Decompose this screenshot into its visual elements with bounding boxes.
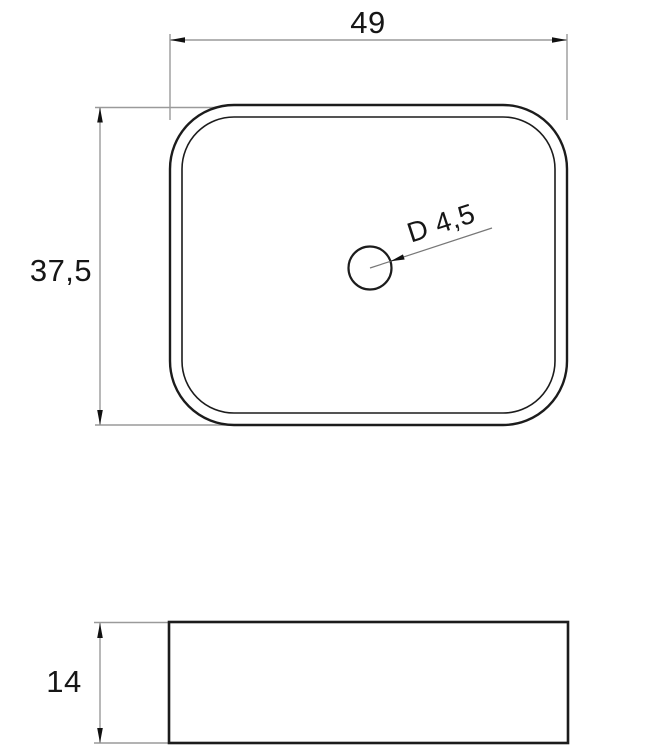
width-dimension: 49 xyxy=(170,5,567,120)
side-arrow-top-icon xyxy=(97,623,103,638)
basin-top-view: D 4,5 xyxy=(170,105,567,425)
height-arrow-top-icon xyxy=(97,108,103,123)
basin-side-view xyxy=(169,622,568,743)
width-arrow-left-icon xyxy=(170,37,185,43)
side-arrow-bottom-icon xyxy=(97,728,103,743)
side-height-dimension: 14 xyxy=(46,623,169,744)
width-arrow-right-icon xyxy=(552,37,567,43)
width-dimension-label: 49 xyxy=(350,5,385,40)
height-dimension-label: 37,5 xyxy=(30,253,92,288)
side-height-dimension-label: 14 xyxy=(46,664,81,699)
drawing-page: 49 37,5 D 4,5 14 xyxy=(0,0,665,754)
technical-drawing-canvas: 49 37,5 D 4,5 14 xyxy=(0,0,665,754)
basin-side-outline xyxy=(169,622,568,743)
height-arrow-bottom-icon xyxy=(97,410,103,425)
